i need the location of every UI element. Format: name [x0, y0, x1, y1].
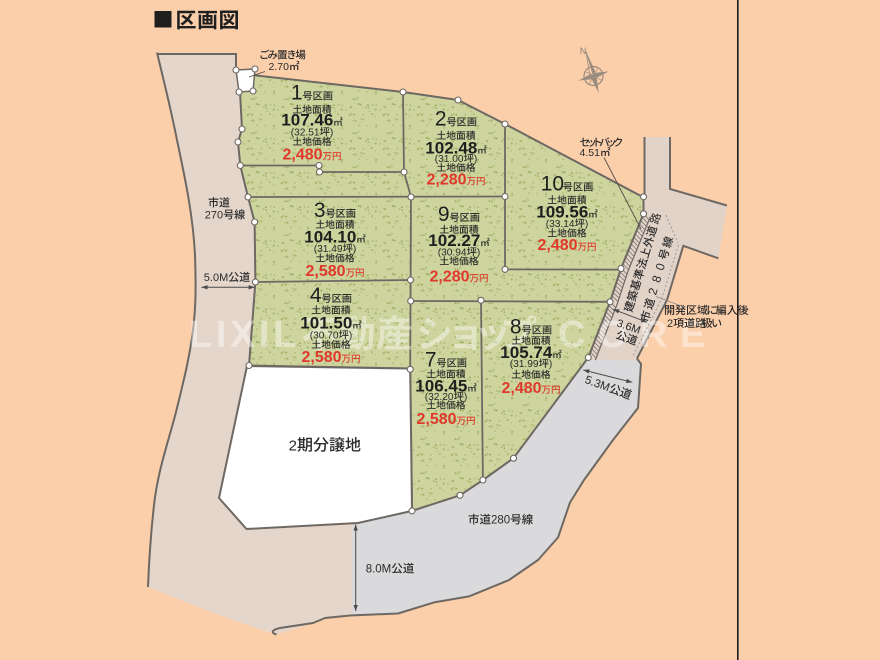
svg-text:9: 9: [438, 203, 450, 226]
svg-text:): ): [585, 219, 588, 230]
svg-text:10: 10: [541, 173, 564, 196]
svg-text:3: 3: [314, 199, 326, 222]
svg-text:1: 1: [291, 82, 303, 105]
svg-text:): ): [477, 248, 480, 259]
svg-text:8: 8: [510, 316, 522, 339]
svg-text:2,480: 2,480: [283, 147, 323, 164]
svg-text:2.70: 2.70: [269, 61, 290, 73]
svg-text:7: 7: [425, 349, 437, 372]
svg-text:2,580: 2,580: [306, 263, 346, 280]
svg-text:LIXIL: LIXIL: [189, 314, 300, 356]
svg-text:): ): [353, 244, 356, 255]
svg-text:(32.51: (32.51: [291, 128, 320, 139]
svg-text:(31.00: (31.00: [435, 154, 464, 165]
svg-text:): ): [349, 331, 352, 342]
svg-text:2,480: 2,480: [502, 380, 542, 397]
svg-text:2,280: 2,280: [427, 172, 467, 189]
svg-text:2: 2: [289, 438, 297, 455]
svg-text:280: 280: [491, 515, 510, 527]
svg-text:2,580: 2,580: [417, 411, 457, 428]
svg-text:8.0M: 8.0M: [366, 564, 392, 576]
svg-text:2,280: 2,280: [430, 269, 470, 286]
svg-text:2: 2: [667, 318, 673, 330]
svg-text:): ): [464, 392, 467, 403]
svg-text:5.0M: 5.0M: [204, 272, 228, 284]
svg-text:(30.94: (30.94: [438, 248, 467, 259]
svg-text:(31.49: (31.49: [314, 244, 343, 255]
svg-text:2,480: 2,480: [538, 237, 578, 254]
svg-text:): ): [474, 154, 477, 165]
svg-text:4.51: 4.51: [580, 147, 601, 159]
svg-text:4: 4: [310, 284, 322, 307]
svg-text:): ): [330, 128, 333, 139]
svg-text:N: N: [580, 46, 587, 56]
svg-text:): ): [549, 359, 552, 370]
svg-text:2: 2: [435, 108, 447, 131]
svg-text:(31.99: (31.99: [510, 359, 539, 370]
svg-text:2,580: 2,580: [302, 349, 342, 366]
svg-text:(33.14: (33.14: [546, 219, 575, 230]
svg-text:270: 270: [205, 210, 223, 222]
svg-text:(30.70: (30.70: [310, 331, 339, 342]
